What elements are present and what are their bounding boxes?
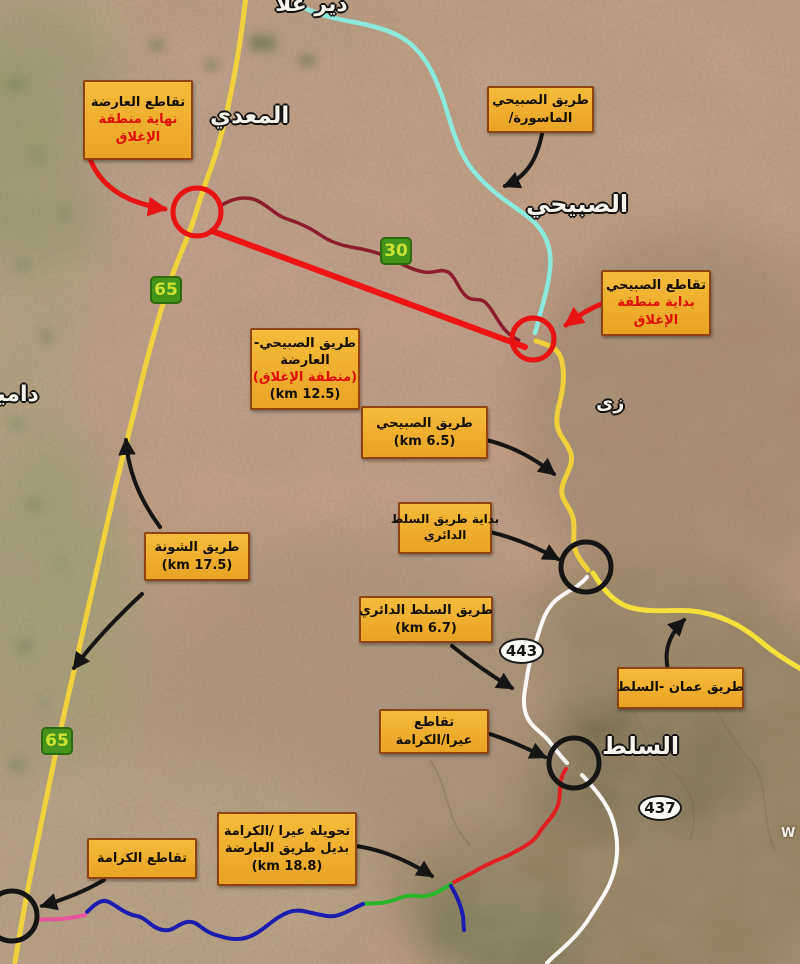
- callout-line: (18.8 km): [252, 858, 323, 875]
- callout-line: طريق الصبيحي: [376, 415, 473, 432]
- callout-line: العارضة: [280, 352, 330, 369]
- callout-line: طريق الصبيحي: [492, 92, 589, 109]
- city-label-deir-alla: دير علا: [275, 0, 348, 17]
- callout-arda-junction: تقاطع العارضة نهاية منطقة الإغلاق: [83, 80, 193, 160]
- city-label-maadi: المعدي: [210, 103, 289, 129]
- callout-line: الماسورة/: [509, 110, 573, 127]
- callout-subaihi-road: طريق الصبيحي (6.5 km): [361, 406, 488, 459]
- callout-line: تحويلة عيرا /الكرامة: [224, 823, 350, 840]
- callout-line: عيرا/الكرامة: [396, 732, 473, 749]
- shield-number: 65: [45, 731, 69, 751]
- callout-line: الإغلاق: [116, 129, 161, 146]
- route-shield-65-south: 65: [41, 727, 73, 755]
- route-shield-437: 437: [638, 795, 682, 821]
- callout-amman-salt-road: طريق عمان -السلط: [617, 667, 744, 709]
- callout-ira-karama-detour: تحويلة عيرا /الكرامة بديل طريق العارضة (…: [217, 812, 357, 886]
- callout-line: (6.7 km): [395, 620, 457, 637]
- callout-line: نهاية منطقة: [99, 111, 178, 128]
- callout-karama-junction: تقاطع الكرامة: [87, 838, 197, 879]
- callout-line: الدائري: [424, 528, 467, 544]
- callout-line: (12.5 km): [270, 386, 341, 403]
- callout-line: بداية منطقة: [617, 294, 694, 311]
- satellite-map: دير علا المعدي الصبيحي دامية زى السلط 65…: [0, 0, 800, 964]
- callout-line: طريق عمان -السلط: [617, 679, 744, 696]
- callout-salt-ring-start: بداية طريق السلط الدائري: [398, 502, 492, 554]
- route-shield-443: 443: [499, 638, 544, 664]
- watermark: W: [781, 826, 795, 841]
- route-shield-30: 30: [380, 237, 412, 265]
- callout-salt-ring-road: طريق السلط الدائري (6.7 km): [359, 596, 493, 643]
- callout-line: الإغلاق: [634, 312, 679, 329]
- city-label-damia: دامية: [0, 382, 39, 407]
- shield-number: 65: [154, 280, 178, 300]
- callout-ira-karama-junction: تقاطع عيرا/الكرامة: [379, 709, 489, 754]
- callout-line: (17.5 km): [162, 557, 233, 574]
- callout-subaihi-junction: تقاطع الصبيحي بداية منطقة الإغلاق: [601, 270, 711, 336]
- callout-line: (منطقة الإغلاق): [253, 369, 357, 386]
- callout-line: بديل طريق العارضة: [225, 840, 349, 857]
- callout-line: طريق السلط الدائري: [359, 602, 493, 619]
- callout-line: تقاطع: [414, 714, 454, 731]
- callout-line: تقاطع الكرامة: [97, 850, 187, 867]
- shield-number: 437: [644, 799, 675, 817]
- shield-number: 443: [506, 642, 537, 660]
- city-label-zai: زى: [596, 392, 624, 414]
- city-label-salt: السلط: [602, 732, 679, 760]
- callout-line: بداية طريق السلط: [391, 512, 499, 528]
- callout-line: (6.5 km): [394, 433, 456, 450]
- callout-subaihi-arda-road: طريق الصبيحي- العارضة (منطقة الإغلاق) (1…: [250, 328, 360, 410]
- callout-line: طريق الصبيحي-: [254, 335, 356, 352]
- callout-line: تقاطع العارضة: [91, 94, 185, 111]
- callout-subaihi-masura-road: طريق الصبيحي الماسورة/: [487, 86, 594, 133]
- callout-shouneh-road: طريق الشونة (17.5 km): [144, 532, 250, 581]
- route-shield-65-north: 65: [150, 276, 182, 304]
- callout-line: تقاطع الصبيحي: [606, 277, 706, 294]
- shield-number: 30: [384, 241, 408, 261]
- city-label-subaihi: الصبيحي: [526, 190, 628, 218]
- callout-line: طريق الشونة: [155, 539, 240, 556]
